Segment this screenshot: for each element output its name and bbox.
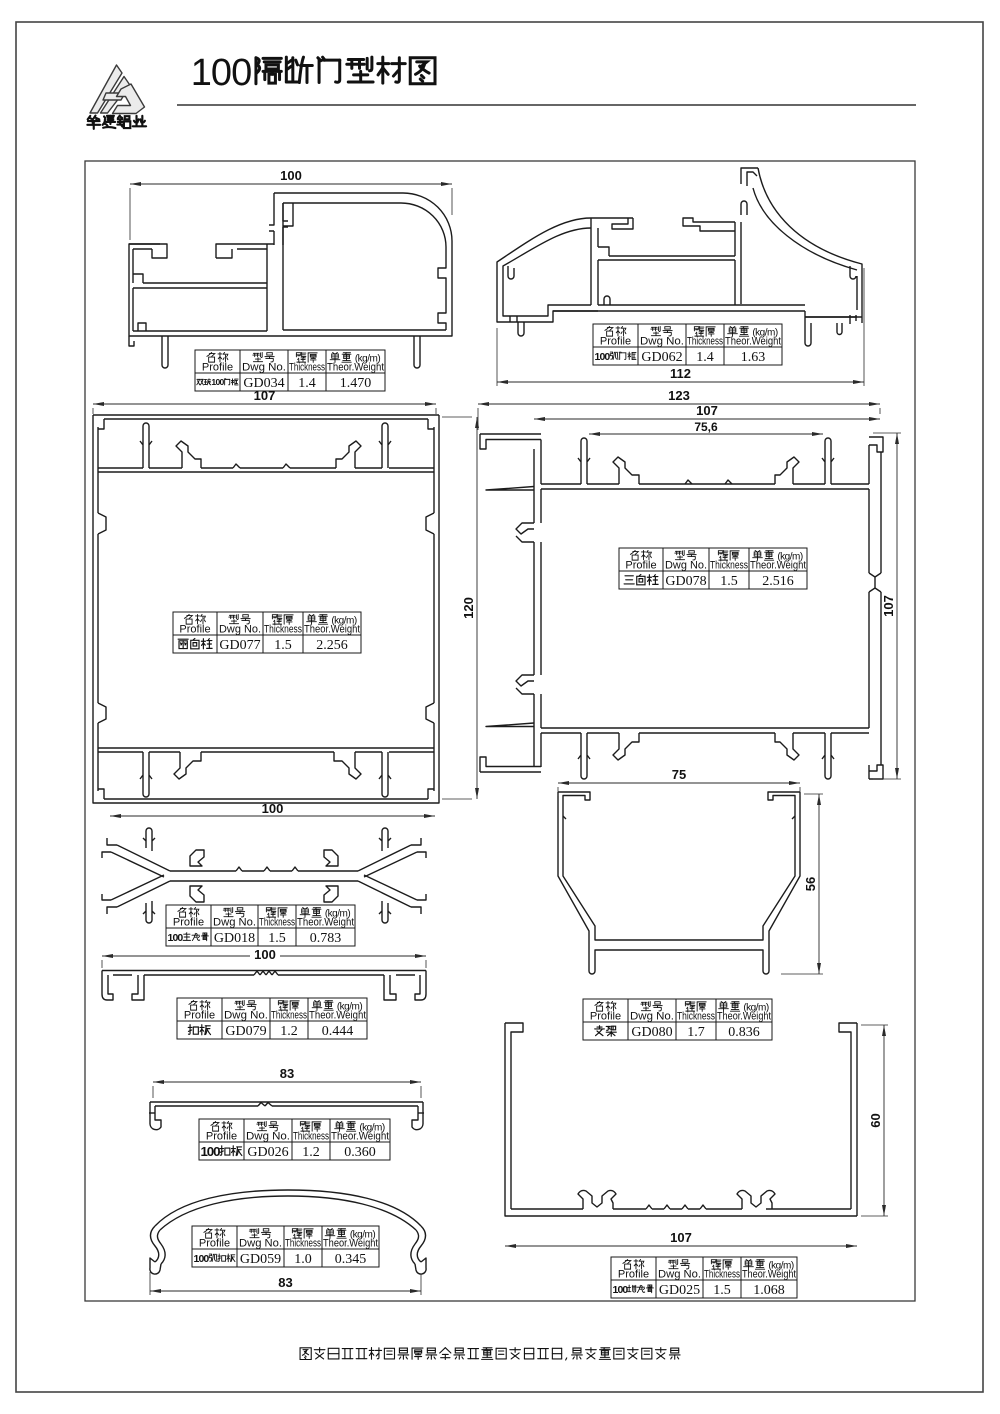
svg-text:Profile: Profile	[206, 1131, 237, 1143]
svg-text:Profile: Profile	[618, 1269, 649, 1281]
svg-text:Theor.Weight: Theor.Weight	[717, 1011, 771, 1023]
svg-text:2.516: 2.516	[762, 574, 794, 589]
svg-text:Thickness: Thickness	[710, 560, 748, 572]
svg-text:107: 107	[254, 388, 276, 403]
svg-text:Dwg No.: Dwg No.	[665, 560, 707, 572]
svg-text:112: 112	[670, 366, 691, 381]
svg-text:100: 100	[262, 801, 284, 816]
svg-text:100: 100	[191, 52, 251, 94]
svg-text:1.63: 1.63	[741, 350, 766, 365]
svg-text:Thickness: Thickness	[285, 1238, 321, 1250]
svg-text:75: 75	[672, 767, 686, 782]
svg-text:1.470: 1.470	[340, 376, 372, 391]
svg-text:Theor.Weight: Theor.Weight	[304, 624, 360, 636]
svg-text:Thickness: Thickness	[289, 362, 325, 374]
svg-text:1.5: 1.5	[274, 638, 292, 653]
svg-text:1.068: 1.068	[753, 1283, 785, 1298]
svg-text:Dwg No.: Dwg No.	[630, 1011, 674, 1023]
svg-text:GD018: GD018	[214, 931, 255, 946]
svg-text:0: 0	[177, 932, 183, 944]
svg-text:120: 120	[461, 597, 476, 619]
svg-text:83: 83	[280, 1066, 294, 1081]
svg-text:1.7: 1.7	[687, 1025, 705, 1040]
svg-text:Theor.Weight: Theor.Weight	[323, 1238, 378, 1250]
svg-text:1.2: 1.2	[302, 1145, 320, 1160]
svg-text:Theor.Weight: Theor.Weight	[327, 362, 384, 374]
svg-text:0.345: 0.345	[335, 1252, 367, 1267]
svg-text:Dwg No.: Dwg No.	[242, 362, 286, 374]
svg-text:Dwg No.: Dwg No.	[640, 336, 684, 348]
svg-text:Theor.Weight: Theor.Weight	[331, 1131, 389, 1143]
svg-text:2.256: 2.256	[316, 638, 348, 653]
svg-text:83: 83	[278, 1275, 292, 1290]
svg-text:Dwg No.: Dwg No.	[246, 1131, 290, 1143]
svg-text:0: 0	[604, 351, 610, 363]
svg-text:Theor.Weight: Theor.Weight	[750, 560, 806, 572]
svg-text:0: 0	[203, 1253, 209, 1265]
svg-text:GD026: GD026	[247, 1145, 288, 1160]
svg-text:1.5: 1.5	[720, 574, 738, 589]
svg-text:GD059: GD059	[240, 1252, 281, 1267]
svg-text:Dwg No.: Dwg No.	[213, 917, 256, 929]
svg-text:1.4: 1.4	[696, 350, 714, 365]
svg-text:GD078: GD078	[665, 574, 706, 589]
svg-text:GD079: GD079	[225, 1024, 266, 1039]
svg-text:GD077: GD077	[219, 638, 260, 653]
svg-text:75,6: 75,6	[694, 420, 718, 434]
svg-text:Dwg No.: Dwg No.	[219, 624, 261, 636]
svg-text:Thickness: Thickness	[293, 1131, 329, 1143]
svg-text:Theor.Weight: Theor.Weight	[725, 336, 781, 348]
svg-text:GD080: GD080	[631, 1025, 672, 1040]
svg-text:107: 107	[881, 595, 896, 617]
svg-text:0: 0	[220, 377, 225, 387]
svg-text:Profile: Profile	[600, 336, 631, 348]
svg-text:1.5: 1.5	[713, 1283, 731, 1298]
svg-text:Profile: Profile	[179, 624, 210, 636]
svg-text:1.4: 1.4	[298, 376, 316, 391]
svg-text:107: 107	[670, 1230, 692, 1245]
svg-text:Dwg No.: Dwg No.	[224, 1010, 268, 1022]
svg-text:Profile: Profile	[173, 917, 204, 929]
svg-text:Theor.Weight: Theor.Weight	[297, 917, 354, 929]
svg-text:Theor.Weight: Theor.Weight	[742, 1269, 796, 1281]
svg-text:Dwg No.: Dwg No.	[239, 1238, 282, 1250]
svg-text:60: 60	[868, 1113, 883, 1127]
svg-text:Thickness: Thickness	[264, 624, 302, 636]
svg-text:Profile: Profile	[625, 560, 656, 572]
svg-text:100: 100	[254, 947, 276, 962]
svg-text:Dwg No.: Dwg No.	[658, 1269, 701, 1281]
svg-text:107: 107	[696, 403, 718, 418]
svg-text:Thickness: Thickness	[677, 1011, 715, 1023]
svg-text:Thickness: Thickness	[687, 336, 723, 348]
svg-text:0.444: 0.444	[322, 1024, 354, 1039]
svg-text:1.5: 1.5	[268, 931, 286, 946]
svg-text:0.783: 0.783	[310, 931, 342, 946]
svg-text:Profile: Profile	[184, 1010, 215, 1022]
svg-text:Thickness: Thickness	[271, 1010, 307, 1022]
svg-text:0.836: 0.836	[728, 1025, 760, 1040]
svg-text:100: 100	[280, 168, 302, 183]
svg-text:Thickness: Thickness	[259, 917, 295, 929]
svg-text:Profile: Profile	[199, 1238, 230, 1250]
svg-text:Theor.Weight: Theor.Weight	[309, 1010, 366, 1022]
svg-text:1.0: 1.0	[294, 1252, 312, 1267]
svg-text:Profile: Profile	[202, 362, 233, 374]
svg-text:56: 56	[803, 877, 818, 891]
svg-text:123: 123	[668, 388, 690, 403]
svg-text:GD025: GD025	[659, 1283, 700, 1298]
svg-text:Profile: Profile	[590, 1011, 621, 1023]
svg-text:Thickness: Thickness	[704, 1269, 740, 1281]
svg-text:1.2: 1.2	[280, 1024, 298, 1039]
svg-text:0: 0	[213, 1144, 220, 1159]
svg-text:GD062: GD062	[641, 350, 682, 365]
svg-text:0.360: 0.360	[344, 1145, 376, 1160]
svg-text:0: 0	[622, 1284, 628, 1296]
